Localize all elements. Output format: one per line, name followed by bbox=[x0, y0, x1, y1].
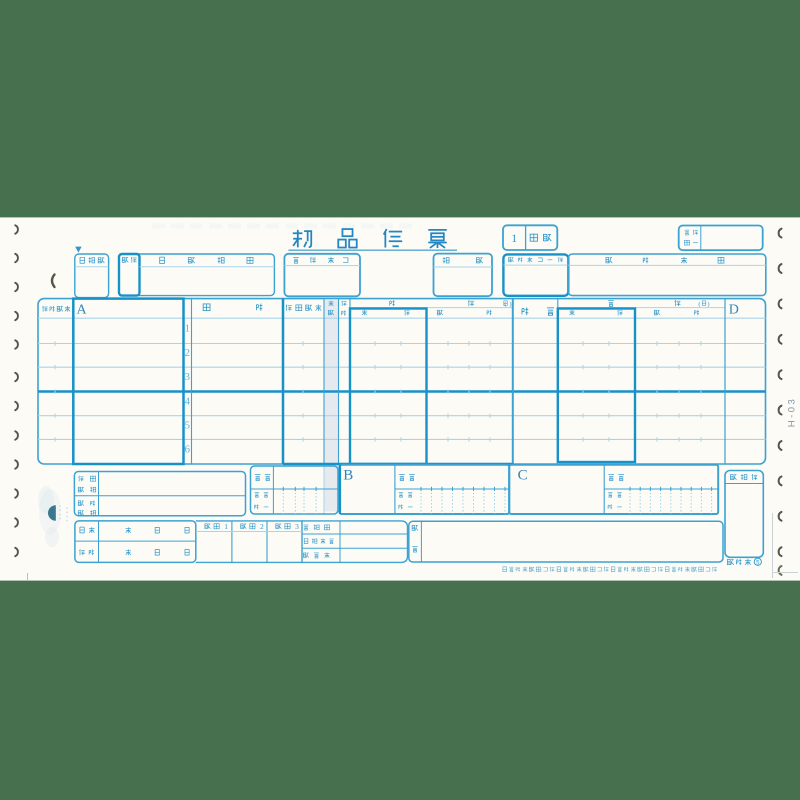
svg-text:5: 5 bbox=[185, 420, 191, 432]
svg-text:H-03: H-03 bbox=[787, 397, 798, 428]
svg-text:(: ( bbox=[698, 301, 700, 308]
svg-text:C: C bbox=[518, 468, 528, 484]
svg-text:B: B bbox=[343, 468, 353, 484]
svg-text:): ) bbox=[509, 301, 511, 308]
svg-text:): ) bbox=[707, 301, 709, 308]
svg-text:2: 2 bbox=[260, 522, 264, 531]
svg-text:(: ( bbox=[504, 301, 506, 308]
svg-text:2: 2 bbox=[185, 347, 191, 359]
svg-text:3: 3 bbox=[185, 371, 191, 383]
svg-text:3: 3 bbox=[295, 522, 299, 531]
svg-text:4: 4 bbox=[185, 396, 191, 408]
svg-text:1: 1 bbox=[224, 522, 228, 531]
svg-text:A: A bbox=[76, 303, 87, 318]
svg-text:1: 1 bbox=[511, 233, 517, 245]
svg-text:1: 1 bbox=[185, 323, 191, 335]
svg-text:6: 6 bbox=[185, 444, 191, 456]
svg-text:D: D bbox=[729, 303, 739, 318]
